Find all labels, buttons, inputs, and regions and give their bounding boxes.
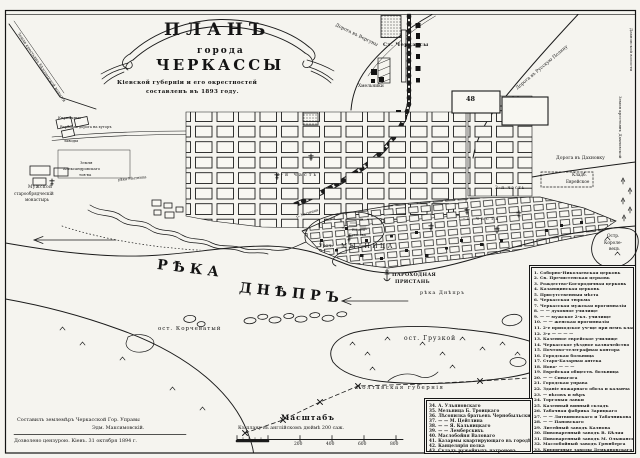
scale-tick-400: 400	[326, 443, 334, 447]
legend-box-secondary: 34. А. Ульяновскаго35. Мельница Б. Троиц…	[424, 398, 533, 454]
monastery-label-1: Мужской	[28, 185, 52, 189]
island-label-korolevets-2: Короле-	[604, 242, 622, 246]
road-label-dakhnovka: Дорога въ Дахновку	[556, 157, 605, 162]
area-label-khmelniki: Хмельники	[358, 85, 384, 89]
area-label-zemlya-1: Земля	[80, 161, 92, 165]
cemetery-label-1: Кладб.	[572, 173, 587, 177]
block-48-label: 48	[466, 96, 475, 103]
scale-caption: Къ плану въ англійскомъ дюймѣ 200 саж.	[238, 427, 344, 432]
city-part-2-label: 2-я часть	[276, 173, 318, 178]
area-label-zemlya-3: тов-ва	[79, 173, 91, 177]
credits-line-3: Дозволено цензурою. Кіевъ. 31 октября 18…	[14, 439, 137, 444]
marsh-label-1: Болото	[352, 229, 365, 233]
legend-item: 43. Складъ ружейныхъ патроновъ	[429, 448, 530, 453]
legend-box-main: 1. Соборно-Николаевская церковь2. Св. Пр…	[529, 265, 636, 454]
map-title-goroda: города	[197, 47, 245, 56]
credits-line-2: Эдм. Максимовскій.	[92, 426, 144, 431]
scale-title: Масштабъ	[281, 414, 335, 422]
tree-symbols	[621, 178, 632, 221]
city-part-1-label: 1-я часть	[458, 217, 500, 222]
cemetery-label-2: Еврейское	[566, 180, 589, 184]
area-label-zemlya-2: Александровскаго	[63, 167, 100, 171]
legend-item: 15. Почтово-телеграфная контора	[534, 347, 633, 353]
legend-item: 11. 2-е приходское уч-ще при немъ классы	[534, 325, 633, 331]
river-label-dnepr-small: рѣка Днѣпръ	[420, 291, 465, 296]
mytnitsa-urochishche-label: МЫТНИЦА	[341, 244, 395, 250]
monastery-label-3: монастырь	[25, 198, 49, 202]
urochishche-label: Уроч.	[319, 245, 333, 250]
credits-line-1: Составилъ землемѣръ Черкасской Гор. Упра…	[17, 418, 140, 423]
map-subtitle-2: составленъ въ 1893 году.	[146, 90, 239, 96]
map-subtitle-1: Кіевской губерніи и его окрестностей	[117, 81, 257, 87]
poltava-governorate-label: Полтавская губернія	[356, 386, 444, 391]
scale-tick-800: 800	[390, 443, 398, 447]
scale-tick-600: 600	[358, 443, 366, 447]
pier-label-2: ПРИСТАНЬ	[395, 280, 430, 285]
island-label-korolevets-1: Остр.	[607, 235, 619, 239]
area-label-zavody: заводы	[64, 139, 78, 143]
island-label-korchevaty: ост. Корчеватый	[158, 327, 221, 333]
legend-item: 22. Зданіе пожарнаго обоза и каланча	[534, 386, 633, 392]
marsh-label-2: Бугаевка	[349, 234, 366, 238]
scale-bar	[237, 436, 403, 442]
pier-label-1: ПАРОХОДНАЯ	[392, 273, 436, 278]
scale-tick-200: 200	[294, 443, 302, 447]
city-part-3-label: 3-я часть	[495, 187, 525, 191]
volost-label-right: Земля крестьянъ Дахновской	[618, 96, 622, 158]
island-label-gruzkoy: ост. Грузкой	[404, 336, 456, 342]
historical-map-cherkassy: ПЛАНЪ города ЧЕРКАССЫ Кіевской губерніи …	[0, 0, 640, 458]
island-label-korolevets-3: вецъ	[609, 248, 619, 252]
monastery-label-2: старообрядческій	[14, 192, 54, 196]
railway-station-label: Ст. Черкассы	[383, 43, 429, 48]
volost-label-dakhnovskoy: Дахновской волости	[629, 28, 633, 71]
map-title-city: ЧЕРКАССЫ	[156, 58, 284, 73]
area-label-kirpichnye: Кирпичные	[58, 116, 81, 120]
legend-item: 33. Кирпичные заводы Демьяновскаго	[534, 447, 633, 453]
road-label-verbovaya: Вербовая дорога на хуторъ	[60, 126, 112, 130]
map-title-plan: ПЛАНЪ	[164, 22, 271, 39]
